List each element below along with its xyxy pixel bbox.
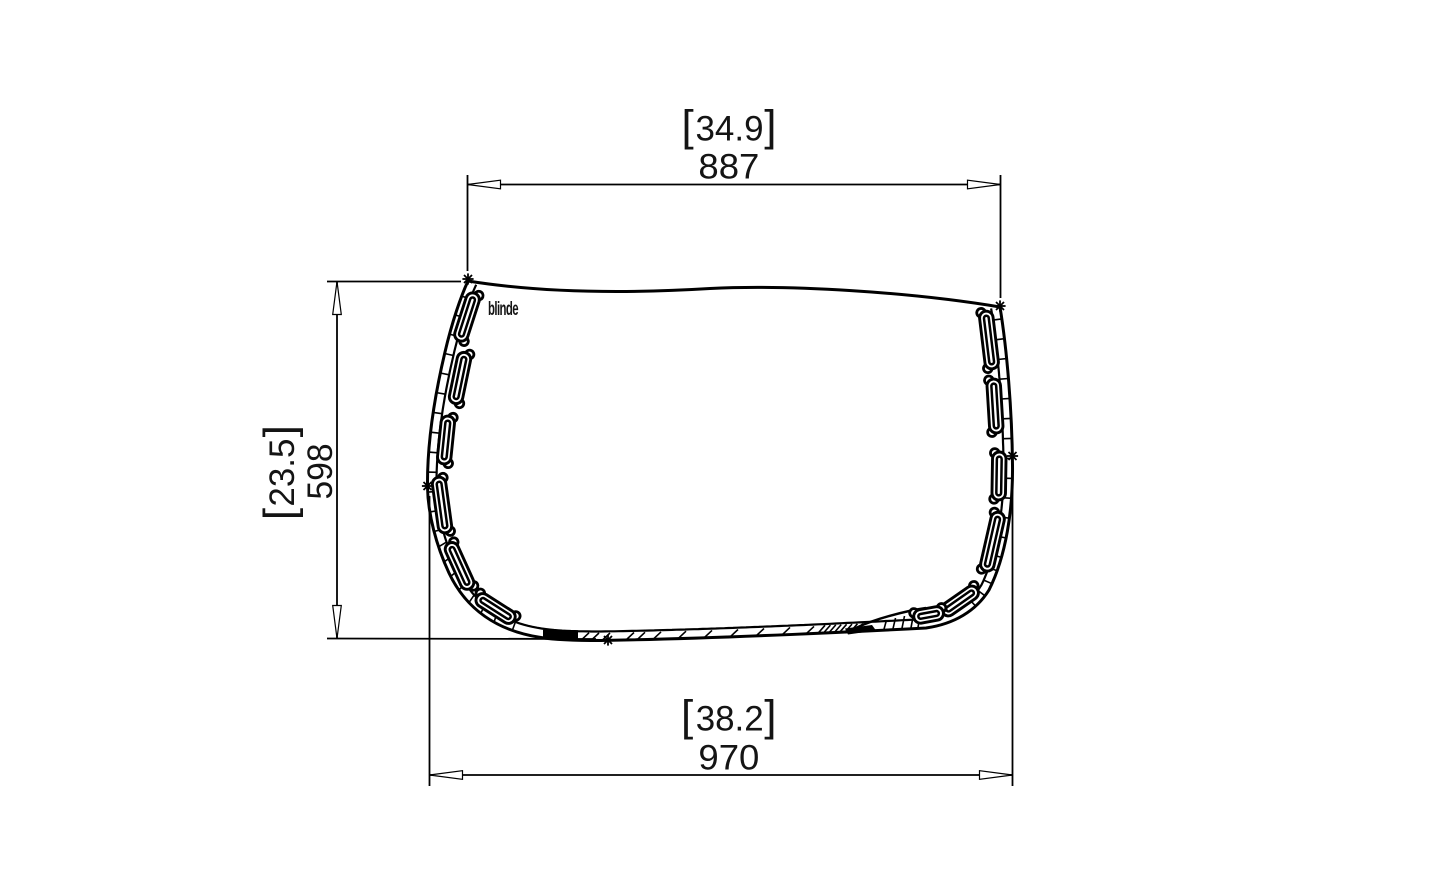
svg-text:887: 887 bbox=[698, 147, 759, 187]
svg-text:598: 598 bbox=[300, 444, 340, 500]
svg-text:23.5: 23.5 bbox=[262, 439, 302, 507]
svg-text:]: ] bbox=[255, 425, 304, 437]
svg-text:34.9: 34.9 bbox=[696, 108, 764, 148]
svg-text:38.2: 38.2 bbox=[696, 698, 764, 738]
svg-text:blinde: blinde bbox=[488, 298, 519, 320]
svg-text:[: [ bbox=[681, 691, 693, 740]
svg-text:[: [ bbox=[255, 508, 304, 520]
svg-text:970: 970 bbox=[698, 738, 759, 778]
svg-text:[: [ bbox=[682, 101, 694, 150]
svg-text:]: ] bbox=[764, 101, 776, 150]
svg-text:]: ] bbox=[764, 691, 776, 740]
